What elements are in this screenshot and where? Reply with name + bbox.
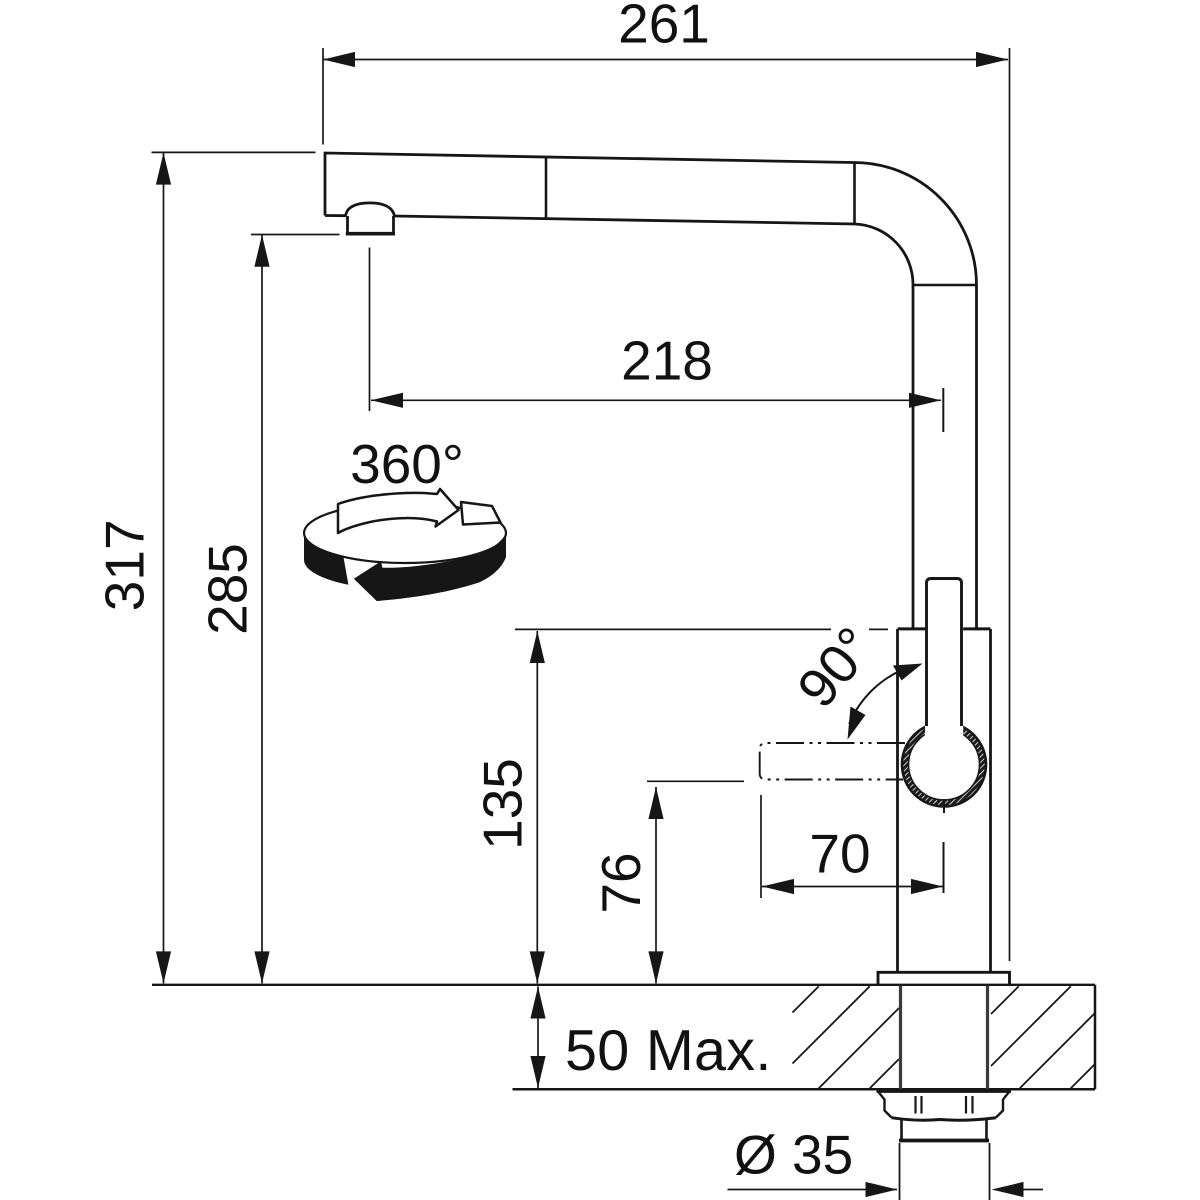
svg-text:135: 135 [472, 758, 534, 850]
svg-text:285: 285 [197, 543, 259, 635]
svg-text:317: 317 [94, 519, 156, 611]
svg-text:261: 261 [618, 0, 710, 55]
svg-text:360°: 360° [350, 433, 464, 495]
svg-text:70: 70 [809, 823, 870, 885]
svg-text:Ø 35: Ø 35 [734, 1124, 853, 1186]
svg-text:218: 218 [621, 330, 713, 392]
svg-text:50 Max.: 50 Max. [565, 1019, 772, 1083]
svg-text:76: 76 [590, 852, 652, 913]
